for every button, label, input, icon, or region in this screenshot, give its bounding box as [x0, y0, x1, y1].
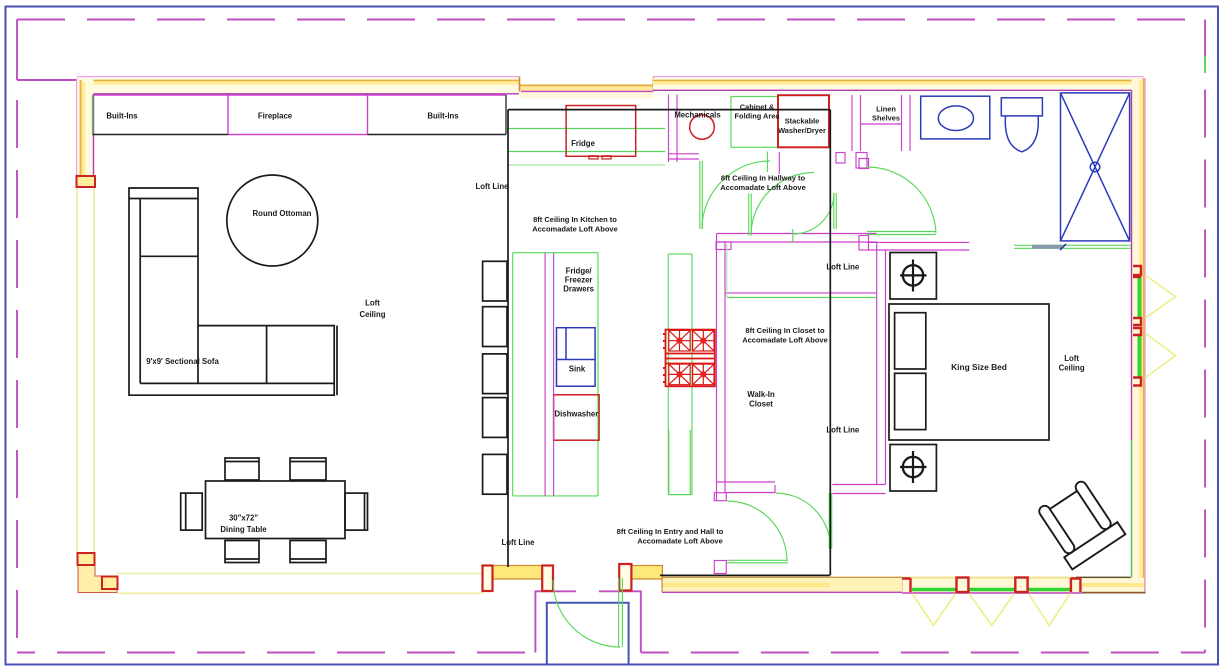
svg-text:Loft: Loft [365, 299, 380, 308]
svg-text:Linen: Linen [876, 105, 896, 114]
svg-text:Loft Line: Loft Line [826, 426, 860, 435]
svg-text:Accomadate Loft Above: Accomadate Loft Above [742, 336, 828, 345]
svg-text:Walk-In: Walk-In [747, 390, 775, 399]
svg-text:Washer/Dryer: Washer/Dryer [778, 126, 826, 135]
svg-text:Round Ottoman: Round Ottoman [253, 209, 312, 218]
svg-text:Folding Area: Folding Area [735, 112, 781, 121]
svg-text:Accomadate Loft Above: Accomadate Loft Above [532, 225, 618, 234]
svg-text:Freezer: Freezer [565, 276, 593, 285]
svg-text:Drawers: Drawers [563, 285, 594, 294]
svg-text:Dining Table: Dining Table [220, 525, 267, 534]
svg-text:Shelves: Shelves [872, 114, 900, 123]
svg-text:8ft Ceiling In Entry and Hall: 8ft Ceiling In Entry and Hall to [617, 527, 724, 536]
svg-text:King Size Bed: King Size Bed [951, 362, 1007, 372]
svg-text:8ft Ceiling In Hallway to: 8ft Ceiling In Hallway to [721, 174, 806, 183]
svg-text:Loft Line: Loft Line [826, 263, 860, 272]
svg-text:Loft Line: Loft Line [476, 182, 510, 191]
svg-text:Loft Line: Loft Line [502, 538, 536, 547]
svg-text:Loft: Loft [1064, 354, 1079, 363]
svg-text:Ceiling: Ceiling [360, 310, 386, 319]
svg-text:Built-Ins: Built-Ins [427, 112, 459, 121]
svg-text:Fridge: Fridge [571, 139, 595, 148]
svg-text:Fireplace: Fireplace [258, 112, 293, 121]
svg-text:Stackable: Stackable [785, 117, 820, 126]
svg-text:8ft Ceiling In Closet to: 8ft Ceiling In Closet to [745, 326, 825, 335]
svg-text:Accomadate Loft Above: Accomadate Loft Above [720, 183, 806, 192]
svg-text:Dishwasher: Dishwasher [555, 410, 599, 419]
svg-text:Ceiling: Ceiling [1059, 364, 1085, 373]
svg-text:Mechanicals: Mechanicals [674, 111, 721, 120]
svg-text:Fridge/: Fridge/ [566, 267, 593, 276]
svg-text:Cabinet &: Cabinet & [740, 103, 775, 112]
svg-text:Built-Ins: Built-Ins [106, 112, 138, 121]
svg-text:Accomadate Loft Above: Accomadate Loft Above [637, 537, 723, 546]
svg-text:8ft Ceiling In Kitchen to: 8ft Ceiling In Kitchen to [533, 215, 617, 224]
svg-text:Closet: Closet [749, 400, 773, 409]
svg-text:Sink: Sink [569, 365, 586, 374]
svg-text:30"x72": 30"x72" [229, 514, 258, 523]
svg-text:9'x9' Sectional Sofa: 9'x9' Sectional Sofa [146, 357, 219, 366]
